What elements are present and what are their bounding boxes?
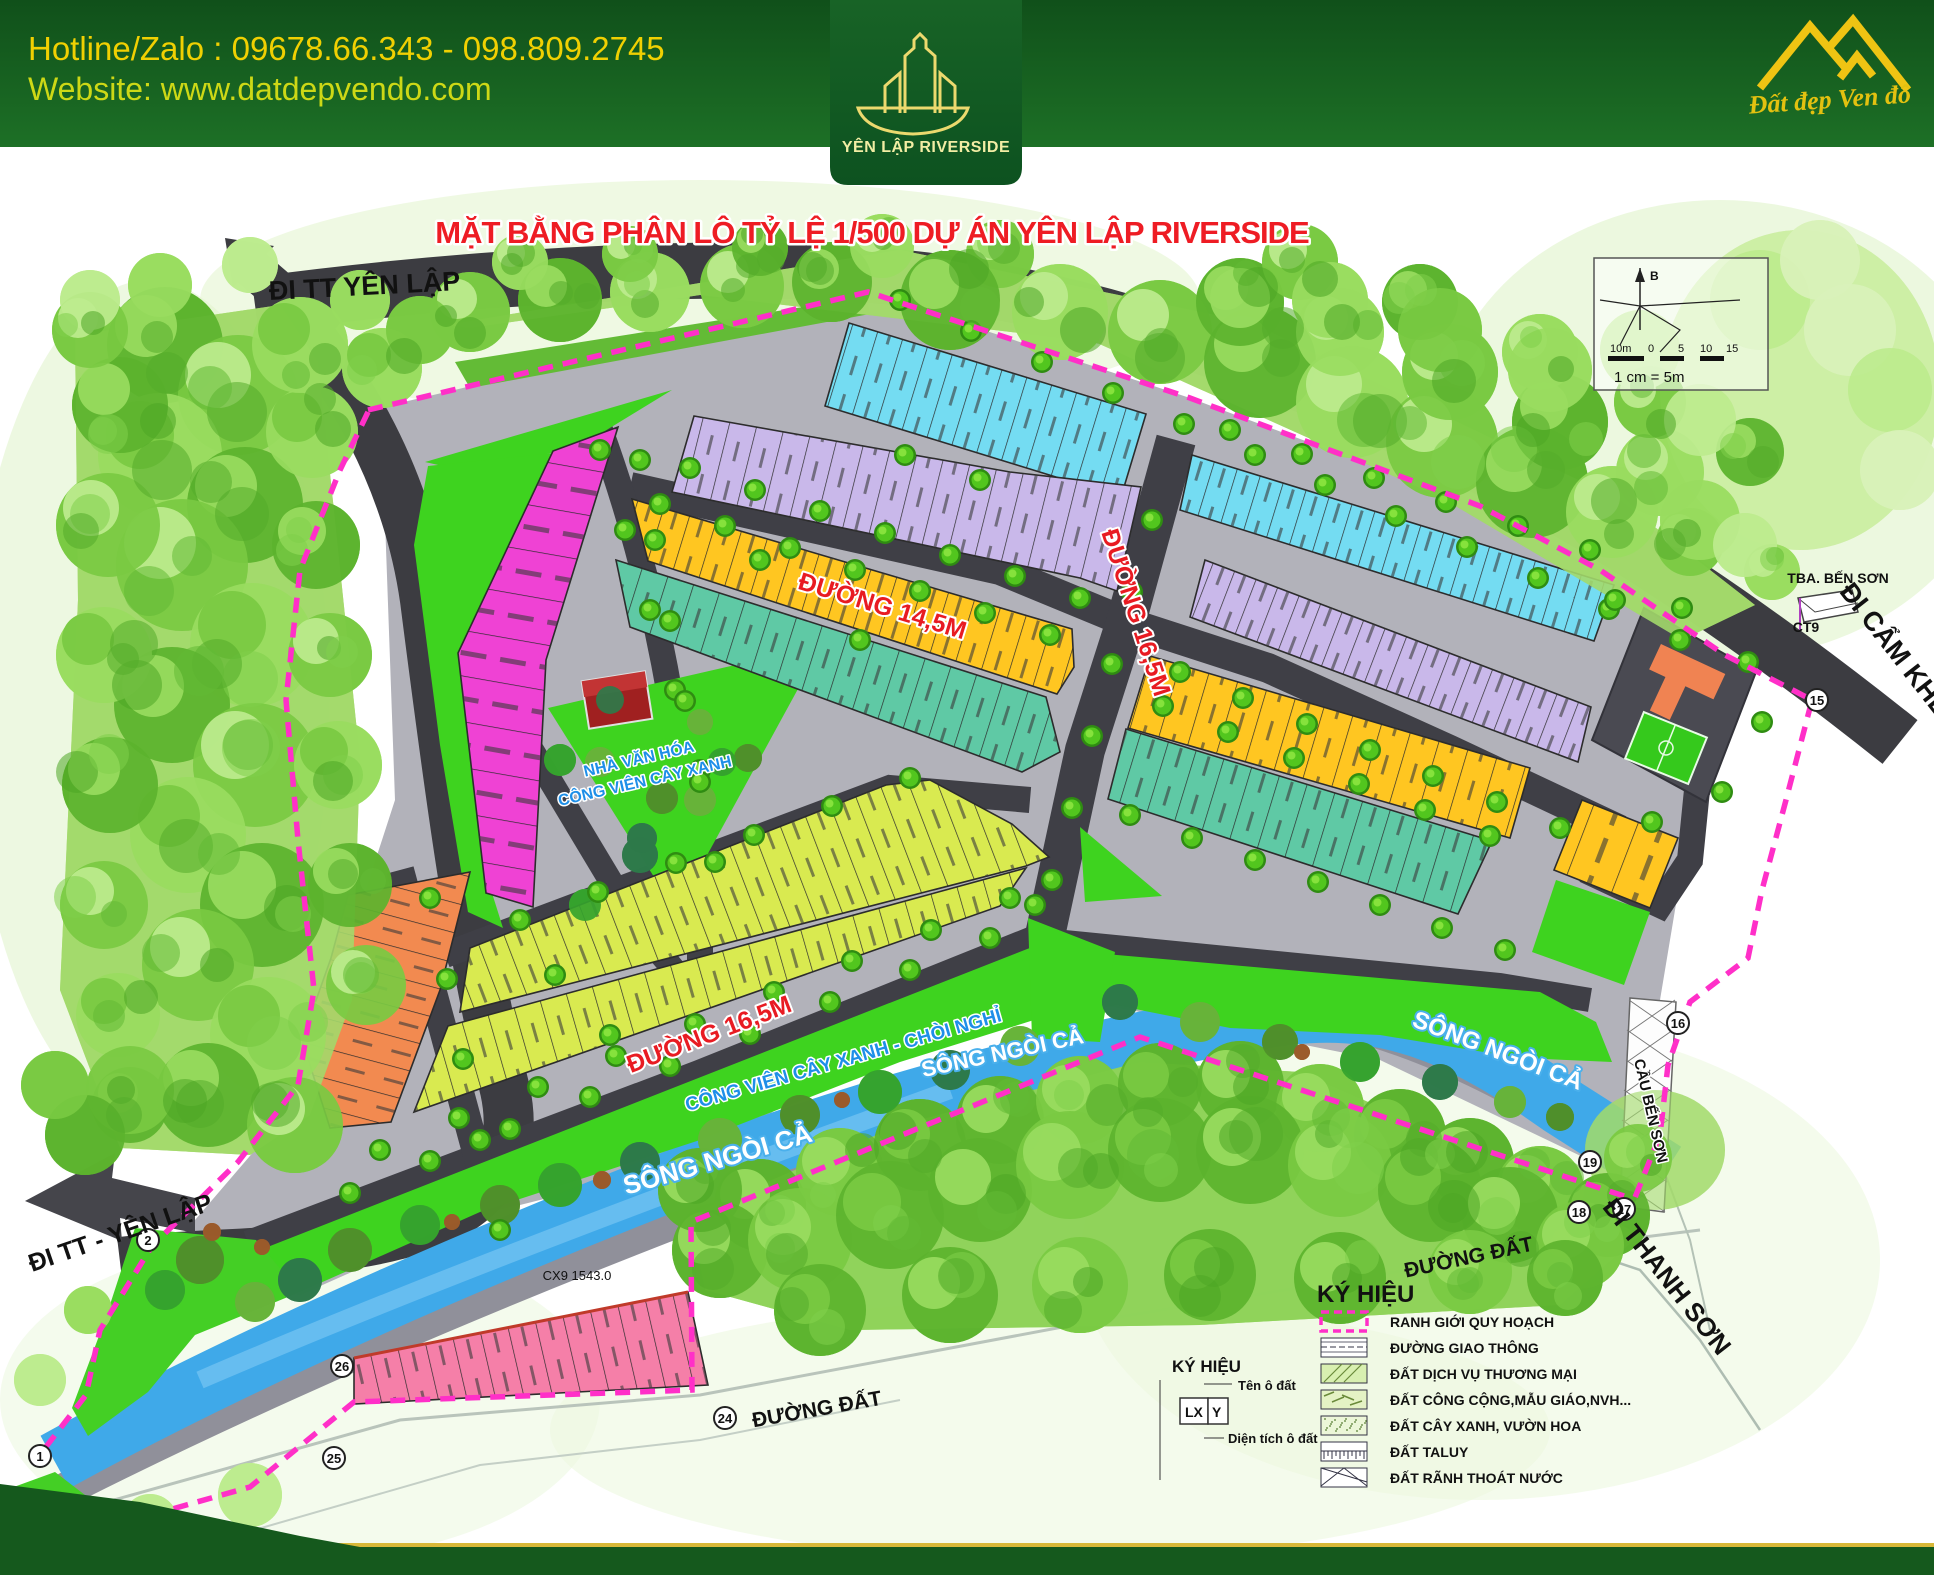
- svg-text:KÝ HIỆU: KÝ HIỆU: [1317, 1280, 1414, 1308]
- svg-text:YÊN LẬP RIVERSIDE: YÊN LẬP RIVERSIDE: [842, 137, 1010, 156]
- svg-text:15: 15: [1810, 693, 1824, 708]
- svg-text:ĐẤT CÂY XANH, VƯỜN HOA: ĐẤT CÂY XANH, VƯỜN HOA: [1390, 1417, 1581, 1434]
- svg-text:5: 5: [1678, 343, 1684, 355]
- svg-text:ĐẤT RÃNH THOÁT NƯỚC: ĐẤT RÃNH THOÁT NƯỚC: [1390, 1469, 1563, 1486]
- svg-text:19: 19: [1583, 1155, 1597, 1170]
- svg-text:ĐẤT DỊCH VỤ THƯƠNG MẠI: ĐẤT DỊCH VỤ THƯƠNG MẠI: [1390, 1366, 1577, 1382]
- svg-text:TBA. BẾN SƠN: TBA. BẾN SƠN: [1787, 570, 1888, 586]
- svg-text:10: 10: [1700, 343, 1712, 355]
- svg-text:ĐƯỜNG GIAO THÔNG: ĐƯỜNG GIAO THÔNG: [1390, 1339, 1539, 1356]
- svg-text:Hotline/Zalo : 09678.66.343 -: Hotline/Zalo : 09678.66.343 - 098.809.27…: [28, 30, 665, 67]
- svg-text:24: 24: [718, 1411, 733, 1426]
- svg-text:Y: Y: [1212, 1404, 1222, 1420]
- svg-text:CX9 1543.0: CX9 1543.0: [543, 1268, 612, 1283]
- svg-text:LX: LX: [1185, 1404, 1204, 1420]
- svg-text:B: B: [1650, 269, 1659, 283]
- svg-text:Tên ô đất: Tên ô đất: [1238, 1378, 1296, 1393]
- svg-text:26: 26: [335, 1359, 349, 1374]
- svg-text:25: 25: [327, 1451, 341, 1466]
- svg-text:ĐẤT TALUY: ĐẤT TALUY: [1390, 1444, 1469, 1460]
- svg-text:RANH GIỚI QUY HOẠCH: RANH GIỚI QUY HOẠCH: [1390, 1313, 1554, 1330]
- svg-text:15: 15: [1726, 343, 1738, 355]
- svg-text:0: 0: [1648, 343, 1654, 355]
- svg-text:CT9: CT9: [1793, 619, 1820, 635]
- svg-text:16: 16: [1671, 1016, 1685, 1031]
- svg-text:MẶT BẰNG PHÂN LÔ TỶ LỆ 1/500: MẶT BẰNG PHÂN LÔ TỶ LỆ 1/500 DỰ ÁN YÊN L…: [435, 214, 1309, 250]
- svg-text:10m: 10m: [1610, 343, 1631, 355]
- svg-text:ĐẤT CÔNG CỘNG,MẪU GIÁO,NVH...: ĐẤT CÔNG CỘNG,MẪU GIÁO,NVH...: [1390, 1391, 1631, 1408]
- svg-text:1: 1: [36, 1449, 43, 1464]
- svg-text:Website: www.datdepvendo.com: Website: www.datdepvendo.com: [28, 71, 492, 107]
- svg-text:18: 18: [1572, 1205, 1586, 1220]
- svg-text:1 cm = 5m: 1 cm = 5m: [1614, 369, 1684, 386]
- svg-text:Diện tích ô đất: Diện tích ô đất: [1228, 1431, 1318, 1446]
- svg-text:KÝ HIỆU: KÝ HIỆU: [1172, 1357, 1241, 1376]
